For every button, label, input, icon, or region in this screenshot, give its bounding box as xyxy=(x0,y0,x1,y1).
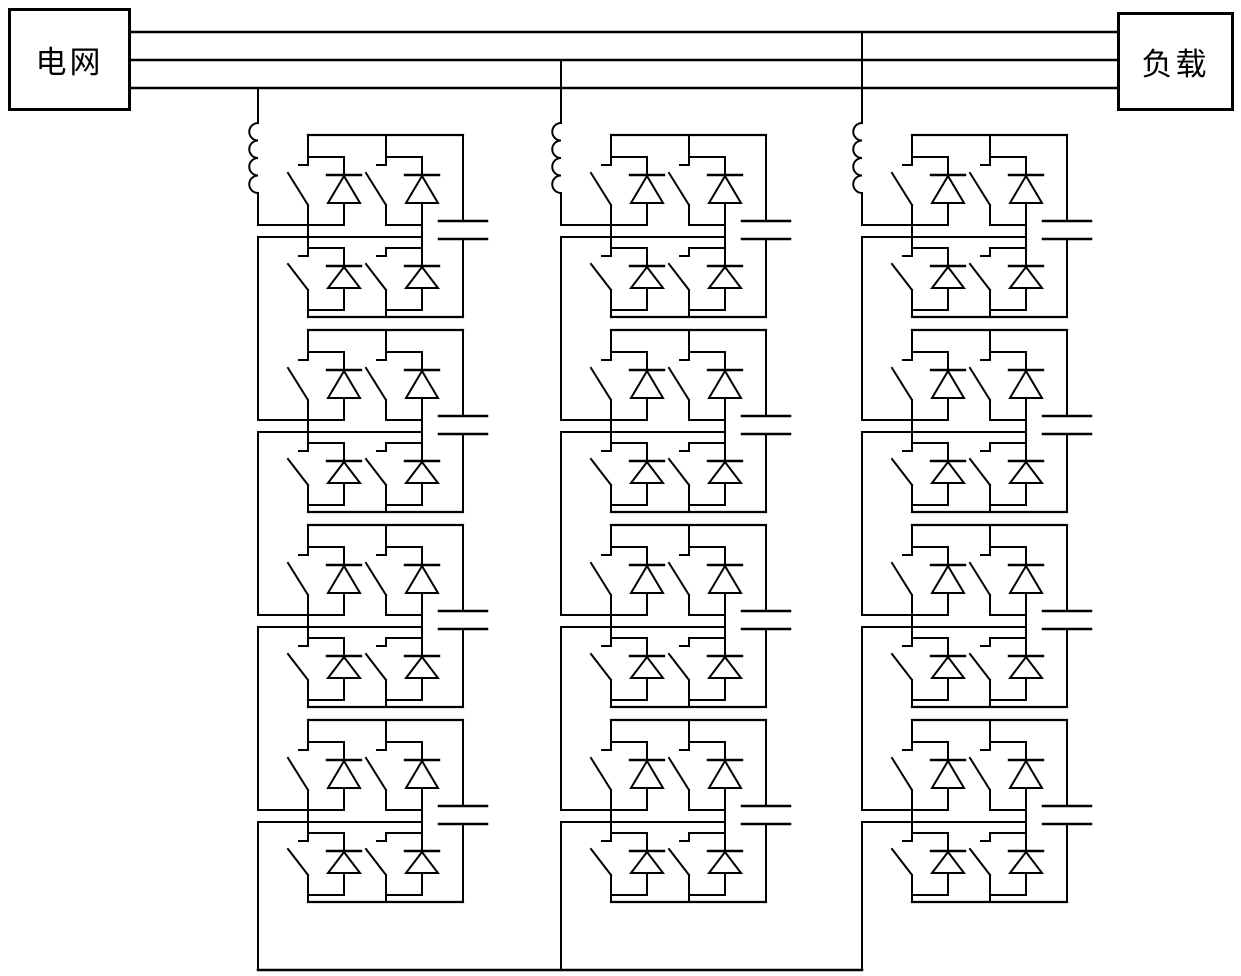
switch-diode-pair xyxy=(366,352,439,420)
diode-icon xyxy=(1009,443,1043,505)
diode-icon xyxy=(327,248,361,310)
hbridge-cell-4 xyxy=(288,720,487,902)
diode-icon xyxy=(630,547,664,615)
switch-diode-pair xyxy=(591,638,664,700)
hbridge-cell-2 xyxy=(591,330,790,512)
dc-capacitor-icon xyxy=(742,330,790,512)
switch-diode-pair xyxy=(970,443,1043,505)
diode-icon xyxy=(931,833,965,895)
bus-lines xyxy=(130,32,1117,88)
switch-diode-pair xyxy=(970,248,1043,310)
load-box: 负载 xyxy=(1117,12,1234,111)
hbridge-cell-2 xyxy=(288,330,487,512)
switch-icon xyxy=(591,638,611,700)
switch-icon xyxy=(970,248,990,310)
switch-diode-pair xyxy=(892,742,965,810)
diode-icon xyxy=(327,352,361,420)
switch-icon xyxy=(892,352,912,420)
diode-icon xyxy=(630,742,664,810)
switch-icon xyxy=(366,443,386,505)
switch-icon xyxy=(288,443,308,505)
hbridge-cell-1 xyxy=(288,135,487,317)
switch-icon xyxy=(970,157,990,225)
diode-icon xyxy=(708,157,742,225)
switch-diode-pair xyxy=(970,547,1043,615)
dc-capacitor-icon xyxy=(439,720,487,902)
dc-capacitor-icon xyxy=(1043,330,1091,512)
hbridge-cell-3 xyxy=(591,525,790,707)
diode-icon xyxy=(931,742,965,810)
switch-icon xyxy=(591,248,611,310)
switch-icon xyxy=(288,742,308,810)
diode-icon xyxy=(1009,638,1043,700)
diode-icon xyxy=(931,638,965,700)
diode-icon xyxy=(708,638,742,700)
diode-icon xyxy=(630,833,664,895)
circuit-diagram: 电网 负载 xyxy=(0,0,1241,976)
switch-icon xyxy=(288,352,308,420)
diode-icon xyxy=(405,157,439,225)
switch-icon xyxy=(669,157,689,225)
diode-icon xyxy=(1009,742,1043,810)
diode-icon xyxy=(708,248,742,310)
switch-icon xyxy=(970,742,990,810)
switch-icon xyxy=(288,547,308,615)
diode-icon xyxy=(405,833,439,895)
switch-diode-pair xyxy=(970,157,1043,225)
switch-diode-pair xyxy=(288,638,361,700)
switch-icon xyxy=(591,833,611,895)
inductor-icon xyxy=(249,123,258,193)
diode-icon xyxy=(327,833,361,895)
switch-icon xyxy=(288,638,308,700)
phase-leg-a xyxy=(249,88,487,970)
switch-diode-pair xyxy=(892,638,965,700)
switch-icon xyxy=(892,742,912,810)
switch-diode-pair xyxy=(288,157,361,225)
switch-icon xyxy=(970,547,990,615)
switch-diode-pair xyxy=(970,638,1043,700)
switch-diode-pair xyxy=(288,248,361,310)
switch-diode-pair xyxy=(288,352,361,420)
switch-diode-pair xyxy=(366,638,439,700)
diode-icon xyxy=(327,157,361,225)
diode-icon xyxy=(327,742,361,810)
switch-diode-pair xyxy=(591,833,664,895)
switch-diode-pair xyxy=(366,248,439,310)
switch-icon xyxy=(669,352,689,420)
dc-capacitor-icon xyxy=(439,525,487,707)
switch-icon xyxy=(366,157,386,225)
diode-icon xyxy=(931,547,965,615)
diode-icon xyxy=(1009,352,1043,420)
diode-icon xyxy=(708,742,742,810)
switch-diode-pair xyxy=(970,352,1043,420)
switch-diode-pair xyxy=(366,157,439,225)
switch-icon xyxy=(366,742,386,810)
switch-icon xyxy=(892,547,912,615)
switch-diode-pair xyxy=(669,157,742,225)
diode-icon xyxy=(1009,547,1043,615)
switch-diode-pair xyxy=(669,833,742,895)
switch-diode-pair xyxy=(288,833,361,895)
diode-icon xyxy=(630,443,664,505)
diode-icon xyxy=(630,638,664,700)
switch-icon xyxy=(892,157,912,225)
switch-diode-pair xyxy=(591,443,664,505)
switch-icon xyxy=(288,157,308,225)
switch-diode-pair xyxy=(591,248,664,310)
switch-diode-pair xyxy=(366,443,439,505)
switch-icon xyxy=(892,833,912,895)
switch-icon xyxy=(669,833,689,895)
dc-capacitor-icon xyxy=(742,525,790,707)
diode-icon xyxy=(708,547,742,615)
switch-diode-pair xyxy=(892,443,965,505)
diode-icon xyxy=(405,248,439,310)
switch-diode-pair xyxy=(669,742,742,810)
switch-icon xyxy=(366,248,386,310)
diode-icon xyxy=(1009,157,1043,225)
switch-icon xyxy=(669,638,689,700)
diode-icon xyxy=(327,638,361,700)
hbridge-cell-2 xyxy=(892,330,1091,512)
switch-diode-pair xyxy=(669,547,742,615)
hbridge-cell-3 xyxy=(288,525,487,707)
diode-icon xyxy=(931,443,965,505)
diode-icon xyxy=(1009,248,1043,310)
dc-capacitor-icon xyxy=(1043,135,1091,317)
dc-capacitor-icon xyxy=(742,720,790,902)
diode-icon xyxy=(405,443,439,505)
switch-icon xyxy=(366,638,386,700)
grid-source-box: 电网 xyxy=(8,8,131,111)
switch-icon xyxy=(970,833,990,895)
switch-icon xyxy=(970,352,990,420)
phase-leg-c xyxy=(853,32,1091,970)
diode-icon xyxy=(405,547,439,615)
dc-capacitor-icon xyxy=(1043,525,1091,707)
switch-diode-pair xyxy=(970,833,1043,895)
diode-icon xyxy=(327,547,361,615)
switch-icon xyxy=(669,547,689,615)
switch-icon xyxy=(591,547,611,615)
diode-icon xyxy=(931,248,965,310)
grid-label: 电网 xyxy=(36,37,104,82)
diode-icon xyxy=(630,352,664,420)
switch-icon xyxy=(288,248,308,310)
switch-diode-pair xyxy=(892,157,965,225)
switch-icon xyxy=(288,833,308,895)
dc-capacitor-icon xyxy=(439,135,487,317)
switch-icon xyxy=(366,833,386,895)
hbridge-cell-4 xyxy=(591,720,790,902)
hbridge-cell-1 xyxy=(591,135,790,317)
diode-icon xyxy=(405,742,439,810)
diode-icon xyxy=(708,443,742,505)
dc-capacitor-icon xyxy=(1043,720,1091,902)
diode-icon xyxy=(1009,833,1043,895)
hbridge-cell-1 xyxy=(892,135,1091,317)
diode-icon xyxy=(708,352,742,420)
hbridge-cell-4 xyxy=(892,720,1091,902)
switch-icon xyxy=(366,352,386,420)
diode-icon xyxy=(405,638,439,700)
dc-capacitor-icon xyxy=(742,135,790,317)
switch-icon xyxy=(366,547,386,615)
switch-diode-pair xyxy=(288,547,361,615)
switch-icon xyxy=(970,638,990,700)
switch-icon xyxy=(669,248,689,310)
diode-icon xyxy=(708,833,742,895)
switch-diode-pair xyxy=(669,443,742,505)
switch-diode-pair xyxy=(366,547,439,615)
phase-leg-b xyxy=(552,60,790,970)
switch-diode-pair xyxy=(591,742,664,810)
inductor-icon xyxy=(853,123,862,193)
inductor-icon xyxy=(552,123,561,193)
diode-icon xyxy=(931,352,965,420)
switch-icon xyxy=(970,443,990,505)
diode-icon xyxy=(327,443,361,505)
load-label: 负载 xyxy=(1142,39,1210,84)
switch-diode-pair xyxy=(892,352,965,420)
switch-icon xyxy=(669,742,689,810)
switch-icon xyxy=(892,443,912,505)
switch-diode-pair xyxy=(366,742,439,810)
switch-diode-pair xyxy=(591,157,664,225)
switch-diode-pair xyxy=(591,547,664,615)
switch-icon xyxy=(892,638,912,700)
switch-diode-pair xyxy=(366,833,439,895)
switch-icon xyxy=(591,157,611,225)
switch-icon xyxy=(669,443,689,505)
switch-diode-pair xyxy=(288,742,361,810)
switch-icon xyxy=(591,742,611,810)
diode-icon xyxy=(630,157,664,225)
switch-diode-pair xyxy=(892,833,965,895)
switch-icon xyxy=(892,248,912,310)
diode-icon xyxy=(931,157,965,225)
diode-icon xyxy=(630,248,664,310)
dc-capacitor-icon xyxy=(439,330,487,512)
switch-diode-pair xyxy=(669,352,742,420)
switch-icon xyxy=(591,443,611,505)
switch-icon xyxy=(591,352,611,420)
switch-diode-pair xyxy=(669,638,742,700)
converter-circuit-svg xyxy=(0,0,1241,976)
switch-diode-pair xyxy=(892,547,965,615)
hbridge-cell-3 xyxy=(892,525,1091,707)
switch-diode-pair xyxy=(591,352,664,420)
diode-icon xyxy=(405,352,439,420)
switch-diode-pair xyxy=(669,248,742,310)
switch-diode-pair xyxy=(970,742,1043,810)
switch-diode-pair xyxy=(892,248,965,310)
switch-diode-pair xyxy=(288,443,361,505)
